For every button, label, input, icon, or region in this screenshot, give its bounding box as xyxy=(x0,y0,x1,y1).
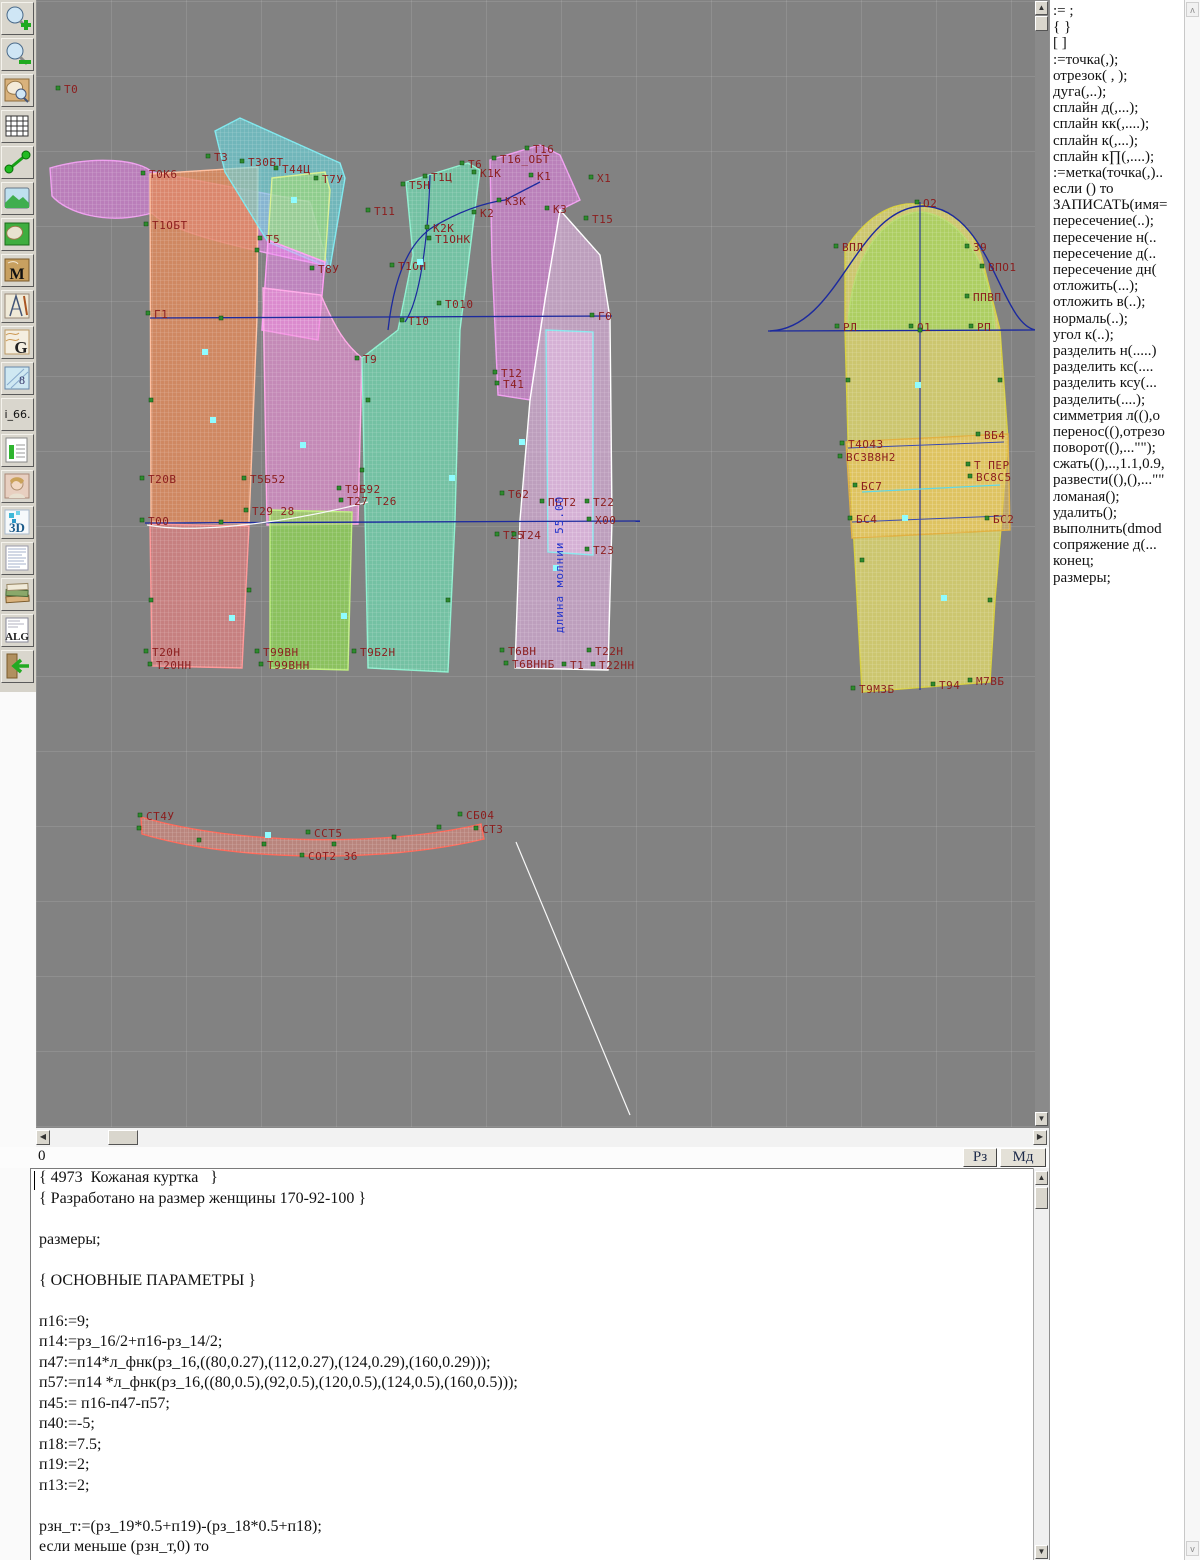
point-marker xyxy=(137,826,141,830)
g-icon: G xyxy=(2,327,33,358)
canvas-scroll-up-button[interactable]: ▲ xyxy=(1035,1,1048,15)
g-button[interactable]: G xyxy=(1,326,34,359)
point-marker xyxy=(140,476,144,480)
point-marker xyxy=(423,174,427,178)
drafting-canvas[interactable]: Т0Т3Т30БТТ44ЦТ7УТ0К6Т1ОБТТ5Т8УГ1Т11Т5НТ1… xyxy=(36,0,1035,1127)
editor-line: п57:=п14 *л_фнк(рз_16,((80,0.5),(92,0.5)… xyxy=(31,1374,1033,1395)
point-marker xyxy=(56,86,60,90)
pattern-drawing: Т0Т3Т30БТТ44ЦТ7УТ0К6Т1ОБТТ5Т8УГ1Т11Т5НТ1… xyxy=(36,0,1035,1127)
construction-line xyxy=(516,842,630,1115)
point-marker xyxy=(255,649,259,653)
grade-marker xyxy=(449,475,455,481)
point-marker xyxy=(590,313,594,317)
editor-line: п45:= п16-п47-п57; xyxy=(31,1395,1033,1416)
command-item[interactable]: сплайн д(,...); xyxy=(1050,100,1184,116)
point-marker xyxy=(492,156,496,160)
point-marker xyxy=(931,682,935,686)
command-item[interactable]: нормаль(..); xyxy=(1050,311,1184,327)
point-label: РЛ xyxy=(843,321,857,334)
svg-text:8: 8 xyxy=(19,373,25,387)
chart-button[interactable] xyxy=(1,434,34,467)
editor-line: п16:=9; xyxy=(31,1313,1033,1334)
point-label: Т7У xyxy=(322,173,343,186)
editor-vscroll-thumb[interactable] xyxy=(1035,1187,1048,1209)
point-label: ССТ5 xyxy=(314,827,343,840)
point-marker xyxy=(141,171,145,175)
grade-marker xyxy=(229,615,235,621)
editor-line: п18:=7.5; xyxy=(31,1436,1033,1457)
alg-doc-icon: ALG xyxy=(2,615,33,646)
point-marker xyxy=(585,547,589,551)
svg-text:ALG: ALG xyxy=(5,631,29,643)
editor-line xyxy=(31,1210,1033,1231)
point-label: Т94 xyxy=(939,679,960,692)
point-label: Т20НН xyxy=(156,659,192,672)
point-marker xyxy=(525,146,529,150)
status-coordinate: 0 xyxy=(38,1148,46,1165)
zoom-in-button[interactable] xyxy=(1,2,34,35)
point-label: ВПО1 xyxy=(988,261,1017,274)
preview-button[interactable] xyxy=(1,74,34,107)
point-marker xyxy=(835,324,839,328)
grade-marker xyxy=(341,613,347,619)
command-item[interactable]: угол к(..); xyxy=(1050,327,1184,343)
command-item[interactable]: развести((),(),..."" xyxy=(1050,472,1184,488)
canvas-scroll-right-button[interactable]: ▶ xyxy=(1033,1130,1047,1145)
editor-line: п47:=п14*л_фнк(рз_16,((80,0.27),(112,0.2… xyxy=(31,1354,1033,1375)
point-label: ВБ4 xyxy=(984,429,1005,442)
point-marker xyxy=(985,516,989,520)
point-marker xyxy=(144,222,148,226)
canvas-hscroll-thumb[interactable] xyxy=(108,1130,138,1145)
command-item[interactable]: выполнить(dmod xyxy=(1050,521,1184,537)
command-item[interactable]: конец; xyxy=(1050,553,1184,569)
point-label: Т99ВНН xyxy=(267,659,310,672)
zoom-in-icon xyxy=(2,3,33,34)
point-label: СОТ2 36 xyxy=(308,850,358,863)
point-label: ВС3В8Н2 xyxy=(846,451,896,464)
command-item[interactable]: разделить кс(.... xyxy=(1050,359,1184,375)
grade-marker xyxy=(202,349,208,355)
point-marker xyxy=(495,381,499,385)
point-label: Т4О43 xyxy=(848,438,884,451)
point-marker xyxy=(853,483,857,487)
zoom-out-icon xyxy=(2,39,33,70)
grade-marker xyxy=(300,442,306,448)
point-label: Т5Б52 xyxy=(250,473,286,486)
alg-button[interactable]: ALG xyxy=(1,614,34,647)
point-marker xyxy=(834,244,838,248)
point-label: К1К xyxy=(480,167,501,180)
text-caret xyxy=(34,1171,35,1190)
command-item[interactable]: отложить(...); xyxy=(1050,278,1184,294)
command-item[interactable]: :=метка(точка(,).. xyxy=(1050,165,1184,181)
point-marker xyxy=(219,520,223,524)
point-marker xyxy=(425,225,429,229)
point-label: Т0К6 xyxy=(149,168,178,181)
chart-icon xyxy=(2,435,33,466)
point-label: БС4 xyxy=(856,513,877,526)
point-label: К3К xyxy=(505,195,526,208)
point-marker xyxy=(149,598,153,602)
point-marker xyxy=(427,236,431,240)
point-label: К3 xyxy=(553,203,567,216)
point-marker xyxy=(401,182,405,186)
notes-doc-icon xyxy=(2,543,33,574)
point-marker xyxy=(968,678,972,682)
grade-marker xyxy=(265,832,271,838)
point-label: Х1 xyxy=(597,172,611,185)
point-marker xyxy=(988,598,992,602)
point-marker xyxy=(976,432,980,436)
point-label: Т3 xyxy=(214,151,228,164)
point-marker xyxy=(500,648,504,652)
point-marker xyxy=(258,236,262,240)
point-label: О2 xyxy=(923,197,937,210)
point-label: Т62 xyxy=(508,488,529,501)
point-label: Т30БТ xyxy=(248,156,284,169)
point-marker xyxy=(446,598,450,602)
point-label: Т00 xyxy=(148,515,169,528)
m-button[interactable]: M xyxy=(1,254,34,287)
editor-line xyxy=(31,1251,1033,1272)
point-label: Т010 xyxy=(445,298,474,311)
command-item[interactable]: отложить в(..); xyxy=(1050,294,1184,310)
point-label: Т22Н xyxy=(595,645,624,658)
point-marker xyxy=(314,176,318,180)
md-button[interactable]: Мд xyxy=(1000,1148,1046,1167)
point-marker xyxy=(980,264,984,268)
point-marker xyxy=(392,835,396,839)
point-marker xyxy=(146,311,150,315)
point-marker xyxy=(255,248,259,252)
point-label: М7ВБ xyxy=(976,675,1005,688)
panel-scroll-up-button[interactable]: ʌ xyxy=(1186,2,1199,17)
point-label: БС7 xyxy=(861,480,882,493)
point-label: Т16_ОБТ xyxy=(500,153,550,166)
editor-line: рзн_т:=(рз_19*0.5+п19)-(рз_18*0.5+п18); xyxy=(31,1518,1033,1539)
measure-button[interactable] xyxy=(1,146,34,179)
point-label: Т9МЗБ xyxy=(859,683,895,696)
point-marker xyxy=(589,175,593,179)
command-item[interactable]: сплайн к(,...); xyxy=(1050,133,1184,149)
point-marker xyxy=(140,518,144,522)
point-marker xyxy=(562,662,566,666)
editor-line: п19:=2; xyxy=(31,1456,1033,1477)
editor-line: { Разработано на размер женщины 170-92-1… xyxy=(31,1190,1033,1211)
point-label: Т99ВН xyxy=(263,646,299,659)
editor-line: если меньше (рзн_т,0) то xyxy=(31,1538,1033,1559)
point-label: ВС8С5 xyxy=(976,471,1012,484)
command-item[interactable]: пересечение дн( xyxy=(1050,262,1184,278)
point-marker xyxy=(474,826,478,830)
point-marker xyxy=(965,294,969,298)
svg-text:M: M xyxy=(9,266,24,283)
point-marker xyxy=(512,532,516,536)
point-marker xyxy=(838,454,842,458)
command-item[interactable]: симметрия л((),о xyxy=(1050,408,1184,424)
editor-vscrollbar[interactable]: ▲ ▼ xyxy=(1033,1168,1049,1560)
editor-line: п40:=-5; xyxy=(31,1415,1033,1436)
threed-button[interactable]: 3D xyxy=(1,506,34,539)
grade-marker xyxy=(291,197,297,203)
command-item[interactable]: ломаная(); xyxy=(1050,489,1184,505)
canvas-hscrollbar[interactable]: ◀ ▶ xyxy=(36,1127,1049,1147)
point-label: Т10 xyxy=(408,315,429,328)
point-marker xyxy=(918,328,922,332)
point-marker xyxy=(366,208,370,212)
point-label: ППВП xyxy=(973,291,1002,304)
command-item[interactable]: сопряжение д(... xyxy=(1050,537,1184,553)
point-label: Т41 xyxy=(503,378,524,391)
point-label: Т0 xyxy=(64,83,78,96)
command-item[interactable]: разделить ксу(... xyxy=(1050,375,1184,391)
grade-marker xyxy=(941,595,947,601)
exit-button[interactable] xyxy=(1,650,34,683)
canvas-scroll-left-button[interactable]: ◀ xyxy=(36,1130,50,1145)
command-item[interactable]: поворот((),...""); xyxy=(1050,440,1184,456)
i66-button[interactable]: i_66. xyxy=(1,398,34,431)
command-item[interactable]: пересечение н(.. xyxy=(1050,230,1184,246)
model-photo-icon xyxy=(2,471,33,502)
point-marker xyxy=(504,661,508,665)
command-item[interactable]: отрезок( , ); xyxy=(1050,68,1184,84)
point-marker xyxy=(998,378,1002,382)
point-marker xyxy=(965,244,969,248)
command-item[interactable]: [ ] xyxy=(1050,35,1184,51)
point-label: Т20Н xyxy=(152,646,181,659)
point-marker xyxy=(493,370,497,374)
point-marker xyxy=(149,398,153,402)
point-marker xyxy=(587,517,591,521)
point-marker xyxy=(545,206,549,210)
command-item[interactable]: удалить(); xyxy=(1050,505,1184,521)
command-item[interactable]: разделить н(.....) xyxy=(1050,343,1184,359)
sizes-card-icon: 8 xyxy=(2,363,33,394)
canvas-vscroll-thumb[interactable] xyxy=(1035,16,1048,31)
point-label: Т5 xyxy=(266,233,280,246)
command-item[interactable]: сжать((),..,1.1,0.9, xyxy=(1050,456,1184,472)
point-label: 39 xyxy=(973,241,987,254)
point-marker xyxy=(909,324,913,328)
point-marker xyxy=(197,838,201,842)
command-item[interactable]: пересечение(..); xyxy=(1050,213,1184,229)
point-marker xyxy=(366,398,370,402)
rz-button[interactable]: Рз xyxy=(963,1148,997,1167)
point-label: Т9 xyxy=(363,353,377,366)
point-marker xyxy=(219,316,223,320)
command-item[interactable]: сплайн кк(,....); xyxy=(1050,116,1184,132)
editor-line: п13:=2; xyxy=(31,1477,1033,1498)
point-marker xyxy=(840,441,844,445)
books-button[interactable] xyxy=(1,578,34,611)
svg-text:G: G xyxy=(14,338,27,357)
i66-label: i_66. xyxy=(4,408,30,421)
image-button[interactable] xyxy=(1,182,34,215)
command-item[interactable]: :=точка(,); xyxy=(1050,52,1184,68)
point-marker xyxy=(138,813,142,817)
notes-button[interactable] xyxy=(1,542,34,575)
point-label: Т6ВН xyxy=(508,645,537,658)
program-editor[interactable]: { 4973 Кожаная куртка }{ Разработано на … xyxy=(30,1168,1033,1560)
pattern-green-icon xyxy=(2,219,33,250)
grade-marker xyxy=(210,417,216,423)
point-label: Т23 xyxy=(593,544,614,557)
point-label: К2 xyxy=(480,207,494,220)
point-label: Г1 xyxy=(154,308,168,321)
point-marker xyxy=(500,491,504,495)
editor-line: п14:=рз_16/2+п16-рз_14/2; xyxy=(31,1333,1033,1354)
point-marker xyxy=(497,198,501,202)
point-label: РП xyxy=(977,321,991,334)
command-item[interactable]: сплайн к∏(,....); xyxy=(1050,149,1184,165)
point-marker xyxy=(355,356,359,360)
point-marker xyxy=(240,159,244,163)
grade-marker xyxy=(902,515,908,521)
point-marker xyxy=(584,216,588,220)
command-list: := ;{ }[ ]:=точка(,);отрезок( , );дуга(,… xyxy=(1050,0,1184,586)
point-marker xyxy=(591,662,595,666)
grid-icon xyxy=(2,111,33,142)
point-label: ВПЛ xyxy=(842,241,863,254)
command-item[interactable]: разделить(....); xyxy=(1050,392,1184,408)
point-label: Т9Б2Н xyxy=(360,646,396,659)
status-row xyxy=(0,1147,1049,1168)
canvas-scroll-down-button[interactable]: ▼ xyxy=(1035,1112,1048,1126)
pattern-preview-icon xyxy=(2,75,33,106)
exit-arrow-icon xyxy=(2,651,33,682)
zipper-length-label: длина молнии 55.00 xyxy=(553,496,566,633)
point-label: Т8У xyxy=(318,263,339,276)
point-marker xyxy=(259,662,263,666)
point-marker xyxy=(360,468,364,472)
point-marker xyxy=(458,812,462,816)
point-label: Т44Ц xyxy=(282,163,311,176)
pattern-button[interactable] xyxy=(1,218,34,251)
model-button[interactable] xyxy=(1,470,34,503)
point-marker xyxy=(332,842,336,846)
point-marker xyxy=(306,830,310,834)
point-label: СТ3 xyxy=(482,823,503,836)
point-label: СТ4У xyxy=(146,810,175,823)
point-marker xyxy=(437,301,441,305)
point-label: Т1ОНК xyxy=(435,233,471,246)
grid-button[interactable] xyxy=(1,110,34,143)
point-marker xyxy=(969,324,973,328)
sizes-button[interactable]: 8 xyxy=(1,362,34,395)
editor-scroll-down-button[interactable]: ▼ xyxy=(1035,1545,1048,1559)
point-marker xyxy=(148,662,152,666)
point-marker xyxy=(585,499,589,503)
grade-marker xyxy=(915,382,921,388)
point-marker xyxy=(472,210,476,214)
point-marker xyxy=(472,170,476,174)
command-item[interactable]: пересечение д(.. xyxy=(1050,246,1184,262)
point-label: Т24 xyxy=(520,529,541,542)
point-marker xyxy=(400,318,404,322)
m-icon: M xyxy=(2,255,33,286)
point-marker xyxy=(860,558,864,562)
panel-scroll-down-button[interactable]: v xyxy=(1186,1541,1199,1556)
zoom-out-button[interactable] xyxy=(1,38,34,71)
point-label: Г0 xyxy=(598,310,612,323)
point-label: Т5Н xyxy=(409,179,430,192)
editor-line: { 4973 Кожаная куртка } xyxy=(31,1169,1033,1190)
point-marker xyxy=(390,263,394,267)
point-marker xyxy=(244,508,248,512)
point-marker xyxy=(337,486,341,490)
point-marker xyxy=(587,648,591,652)
point-marker xyxy=(846,378,850,382)
point-marker xyxy=(495,532,499,536)
point-marker xyxy=(206,154,210,158)
point-marker xyxy=(352,649,356,653)
grade-marker xyxy=(519,439,525,445)
editor-line: размеры; xyxy=(31,1231,1033,1252)
point-marker xyxy=(144,649,148,653)
point-marker xyxy=(247,588,251,592)
point-marker xyxy=(848,516,852,520)
point-label: Т20В xyxy=(148,473,177,486)
drafting-compass-icon xyxy=(2,291,33,322)
point-label: БС2 xyxy=(993,513,1014,526)
point-marker xyxy=(529,173,533,177)
grade-marker xyxy=(417,259,423,265)
point-label: Т29 28 xyxy=(252,505,295,518)
editor-scroll-up-button[interactable]: ▲ xyxy=(1035,1171,1048,1185)
point-marker xyxy=(262,842,266,846)
point-marker xyxy=(851,686,855,690)
canvas-vscrollbar[interactable]: ▲ ▼ xyxy=(1035,0,1049,1127)
point-label: Т11 xyxy=(374,205,395,218)
left-toolbar: M G 8 i_66. 3D ALG xyxy=(0,0,36,692)
point-marker xyxy=(310,266,314,270)
point-marker xyxy=(242,476,246,480)
command-item[interactable]: ЗАПИСАТЬ(имя= xyxy=(1050,197,1184,213)
point-label: К1 xyxy=(537,170,551,183)
point-marker xyxy=(966,462,970,466)
point-label: Т27 Т26 xyxy=(347,495,397,508)
command-item[interactable]: { } xyxy=(1050,19,1184,35)
point-marker xyxy=(339,498,343,502)
point-label: Т22НН xyxy=(599,659,635,672)
point-marker xyxy=(460,161,464,165)
point-marker xyxy=(915,200,919,204)
drafting-button[interactable] xyxy=(1,290,34,323)
command-item[interactable]: перенос((),отрезо xyxy=(1050,424,1184,440)
point-label: СБ04 xyxy=(466,809,495,822)
point-label: Т1 xyxy=(570,659,584,672)
measure-icon xyxy=(2,147,33,178)
editor-line xyxy=(31,1292,1033,1313)
editor-line xyxy=(31,1497,1033,1518)
svg-text:3D: 3D xyxy=(9,520,25,535)
point-marker xyxy=(437,825,441,829)
point-marker xyxy=(968,474,972,478)
command-item[interactable]: := ; xyxy=(1050,3,1184,19)
command-item[interactable]: если () то xyxy=(1050,181,1184,197)
command-item[interactable]: размеры; xyxy=(1050,570,1184,586)
point-marker xyxy=(274,166,278,170)
point-marker xyxy=(300,853,304,857)
image-icon xyxy=(2,183,33,214)
point-label: Т6ВННБ xyxy=(512,658,555,671)
point-label: Т15 xyxy=(592,213,613,226)
panel-vscrollbar[interactable]: ʌ v xyxy=(1184,0,1200,1560)
point-label: Т1Ц xyxy=(431,171,452,184)
command-item[interactable]: дуга(,..); xyxy=(1050,84,1184,100)
editor-line: { ОСНОВНЫЕ ПАРАМЕТРЫ } xyxy=(31,1272,1033,1293)
